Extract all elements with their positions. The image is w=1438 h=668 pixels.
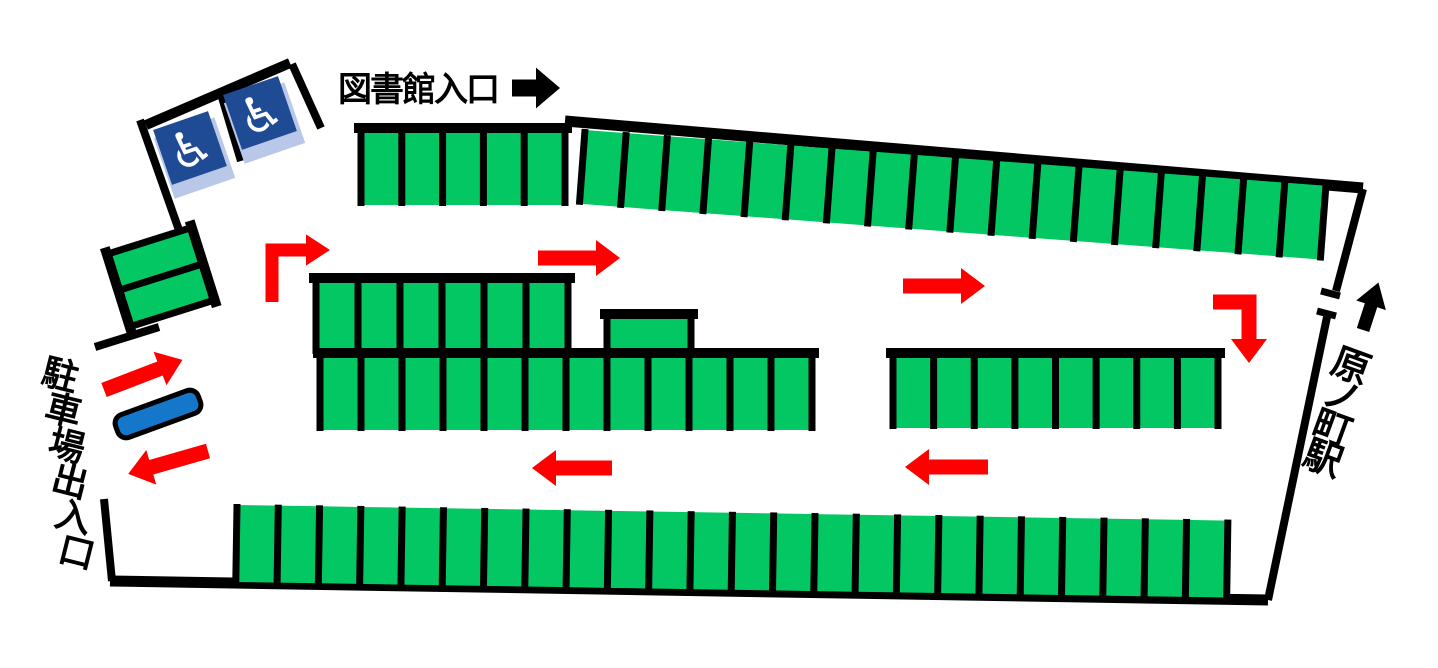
- parking-space: [938, 516, 980, 594]
- parking-space: [484, 509, 526, 587]
- parking-space: [525, 510, 567, 588]
- parking-space: [400, 283, 442, 353]
- stall-divider: [401, 507, 402, 586]
- parking-space: [360, 507, 402, 585]
- parking-space: [648, 358, 689, 430]
- stall-divider: [277, 505, 278, 584]
- row-mid-upper: [309, 278, 575, 354]
- parking-space: [896, 515, 938, 593]
- stall-divider: [1185, 519, 1186, 598]
- parking-space: [893, 358, 934, 428]
- parking-space: [566, 358, 607, 430]
- stall-divider: [442, 507, 443, 586]
- parking-space: [443, 133, 484, 205]
- parking-space: [690, 512, 732, 590]
- parking-space: [484, 283, 526, 353]
- parking-space: [974, 358, 1015, 428]
- boundary-wall: [1336, 189, 1363, 291]
- parking-space: [979, 517, 1021, 595]
- station-direction-arrow: [1348, 278, 1393, 335]
- parking-space: [525, 358, 566, 430]
- parking-space: [649, 511, 691, 589]
- stall-divider: [1227, 520, 1228, 599]
- row-mid-right: [886, 353, 1225, 429]
- row-mid-lower: [313, 353, 819, 431]
- parking-space: [1177, 358, 1218, 428]
- parking-space: [316, 283, 358, 353]
- stall-divider: [938, 515, 939, 594]
- parking-space: [1062, 518, 1104, 596]
- stall-divider: [896, 514, 897, 593]
- parking-space: [731, 513, 773, 591]
- parking-space: [773, 513, 815, 591]
- parking-space: [443, 358, 484, 430]
- entrance-island: [113, 388, 204, 441]
- flow-left-arrow-lower-mid: [532, 450, 612, 486]
- parking-space: [1137, 358, 1178, 428]
- parking-lot-diagram: ♿ ♿ 図書館入口 駐車場出入口原ノ町駅: [0, 0, 1438, 668]
- flow-up-right-bend-arrow: [272, 250, 306, 302]
- parking-gate-label-char: 口: [54, 529, 99, 577]
- flow-up-right-bend-arrow-head: [306, 234, 330, 265]
- parking-space: [236, 505, 278, 583]
- parking-lot-map: ♿ ♿ 図書館入口 駐車場出入口原ノ町駅: [0, 0, 1438, 668]
- parking-space: [689, 358, 730, 430]
- parking-space: [771, 358, 812, 430]
- stall-divider: [855, 514, 856, 593]
- parking-space: [1056, 358, 1097, 428]
- stall-divider: [979, 516, 980, 595]
- parking-space: [484, 358, 525, 430]
- stall-divider: [731, 512, 732, 591]
- parking-space: [934, 358, 975, 428]
- entrance-island-bar: [113, 388, 204, 441]
- flow-right-down-bend-arrow-head: [1231, 339, 1267, 363]
- parking-space: [855, 515, 897, 593]
- parking-space: [1020, 517, 1062, 595]
- stall-divider: [360, 506, 361, 585]
- parking-space: [442, 508, 484, 586]
- parking-space: [277, 506, 319, 584]
- accessible-parking-area: ♿ ♿: [151, 75, 305, 199]
- flow-left-arrow-lower-right: [905, 449, 988, 485]
- flow-right-arrow-upper-right: [903, 268, 985, 304]
- parking-space: [607, 358, 648, 430]
- parking-space: [402, 358, 443, 430]
- stall-divider: [566, 509, 567, 588]
- stall-divider: [1020, 516, 1021, 595]
- parking-space: [524, 133, 565, 205]
- parking-space: [814, 514, 856, 592]
- parking-space: [1103, 519, 1145, 597]
- stall-divider: [483, 508, 484, 587]
- flow-right-down-bend-arrow: [1213, 302, 1249, 339]
- parking-space: [1144, 519, 1186, 597]
- stall-divider: [814, 513, 815, 592]
- row-left-tilted: [105, 221, 217, 334]
- parking-space: [402, 133, 443, 205]
- parking-space: [361, 133, 402, 205]
- row-library-front: [354, 128, 572, 206]
- parking-space: [1185, 520, 1227, 598]
- library-entrance-label: 図書館入口: [338, 70, 498, 110]
- parking-space: [526, 283, 568, 353]
- stall-divider: [1062, 517, 1063, 596]
- parking-rows: [105, 128, 1326, 599]
- stall-divider: [318, 505, 319, 584]
- parking-space: [730, 358, 771, 430]
- parking-space: [1015, 358, 1056, 428]
- boundary-wall: [1317, 311, 1336, 316]
- flow-right-arrow-upper-left: [538, 240, 620, 276]
- parking-space: [320, 358, 361, 430]
- stall-divider: [1103, 518, 1104, 597]
- stall-divider: [773, 512, 774, 591]
- stall-divider: [525, 509, 526, 588]
- stall-divider: [690, 511, 691, 590]
- parking-space: [483, 133, 524, 205]
- parking-space: [318, 506, 360, 584]
- stall-divider: [607, 510, 608, 589]
- parking-space: [401, 508, 443, 586]
- stall-divider: [649, 510, 650, 589]
- parking-space: [361, 358, 402, 430]
- parking-space: [1096, 358, 1137, 428]
- gate-out-arrow: [123, 434, 213, 491]
- boundary-wall: [104, 499, 112, 581]
- parking-space: [442, 283, 484, 353]
- stall-divider: [1144, 518, 1145, 597]
- parking-space: [358, 283, 400, 353]
- boundary-wall: [1321, 291, 1340, 296]
- parking-space: [607, 511, 649, 589]
- parking-space: [566, 510, 608, 588]
- library-entrance-arrow: [512, 68, 560, 109]
- stall-divider: [236, 504, 237, 583]
